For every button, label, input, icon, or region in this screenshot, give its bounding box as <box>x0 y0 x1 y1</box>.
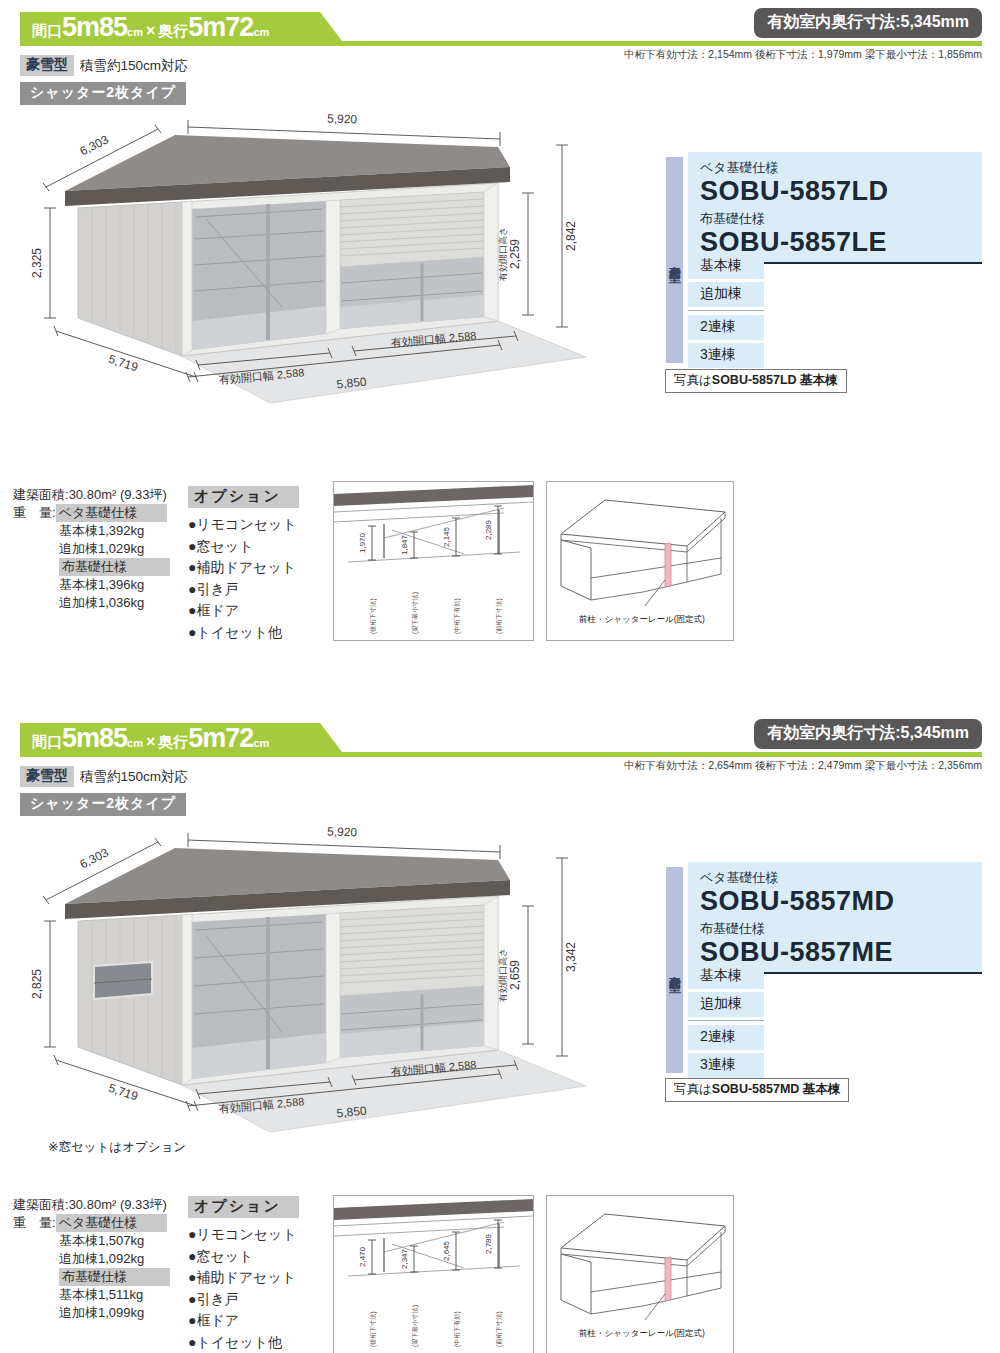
row-divider <box>688 1020 764 1021</box>
row-divider <box>688 310 764 311</box>
dim-roof-depth: 6,303 <box>78 845 111 871</box>
snow-capacity-note: 積雪約150cm対応 <box>80 57 188 75</box>
cs-dim-value: 2,470 <box>358 1246 367 1267</box>
beta-model-number: SOBU-5857MD <box>700 887 982 916</box>
size-width-value: 5m85 <box>62 12 127 42</box>
unit-row-additional: 追加棟 <box>688 282 764 307</box>
snow-capacity-note: 積雪約150cm対応 <box>80 768 188 786</box>
beta-model-number: SOBU-5857LD <box>700 177 982 206</box>
dim-side-depth: 5,719 <box>107 352 140 375</box>
effective-depth-badge: 有効室内奥行寸法:5,345mm <box>754 719 982 749</box>
size-width-value: 5m85 <box>62 723 127 753</box>
weight-label: 重 量: <box>13 505 56 520</box>
size-depth-value: 5m72 <box>188 723 253 753</box>
photo-caption-prefix: 写真は <box>674 1082 712 1096</box>
size-prefix: 間口 <box>32 727 62 752</box>
unit-row-3ren: 3連棟 <box>688 343 764 368</box>
building-area: 建築面積:30.80m² (9.33坪) <box>13 486 170 504</box>
cs-dim-label: (後桁下寸法) <box>369 1311 377 1347</box>
beta-add-weight: 追加棟1,029kg <box>13 540 170 558</box>
cross-section-svg: 2,470 2,347 2,645 2,789 (後桁下寸法) (梁下最小寸法)… <box>334 1196 533 1353</box>
option-item: ●框ドア <box>188 600 299 622</box>
beta-weight-header: ベタ基礎仕様 <box>56 1214 167 1232</box>
model-box: ベタ基礎仕様 SOBU-5857LD 布基礎仕様 SOBU-5857LE <box>688 152 982 264</box>
side-window <box>94 962 152 999</box>
nuno-base-weight: 基本棟1,396kg <box>13 576 170 594</box>
cs-dim-label: (梁下最小寸法) <box>411 1305 419 1347</box>
rail-diagram-svg: 前柱・シャッターレール(固定式) <box>547 482 733 640</box>
nuno-weight-header-line: 布基礎仕様 <box>13 558 170 576</box>
snow-type-badge: 豪雪型 <box>20 766 74 787</box>
size-unit: cm <box>253 737 269 749</box>
unit-row-additional: 追加棟 <box>688 992 764 1017</box>
size-depth-value: 5m72 <box>188 12 253 42</box>
garage-isometric-drawing: 5,920 6,303 2,825 5,719 有効開口高さ 2,659 3,3… <box>30 818 630 1154</box>
options-title: オプション <box>188 1196 299 1218</box>
dim-roof-width: 5,920 <box>327 824 358 839</box>
cs-dim-label: (前桁下寸法) <box>495 598 503 634</box>
cs-dim-label: (梁下最小寸法) <box>411 592 419 634</box>
dim-roof-depth: 6,303 <box>78 132 111 158</box>
rail-label: 前柱・シャッターレール(固定式) <box>579 1328 705 1338</box>
cross-section-svg: 1,970 1,847 2,145 2,289 (後桁下寸法) (梁下最小寸法)… <box>334 482 533 640</box>
depth-prefix: 奥行 <box>158 16 188 41</box>
rail-label: 前柱・シャッターレール(固定式) <box>579 614 705 624</box>
size-banner-text: 間口5m85cm×奥行5m72cm <box>32 723 269 753</box>
cs-dim-value: 1,970 <box>358 532 367 553</box>
nuno-model-number: SOBU-5857ME <box>700 938 982 967</box>
model-box: ベタ基礎仕様 SOBU-5857MD 布基礎仕様 SOBU-5857ME <box>688 862 982 974</box>
cross-section-diagram: 1,970 1,847 2,145 2,289 (後桁下寸法) (梁下最小寸法)… <box>333 481 534 641</box>
option-item: ●トイセット他 <box>188 1332 299 1353</box>
weight-line: 重 量:ベタ基礎仕様 <box>13 504 170 522</box>
cs-dim-label: (中桁下有効) <box>453 1311 461 1347</box>
building-area-value: 30.80m² (9.33坪) <box>69 487 167 502</box>
options-block: オプション ●リモコンセット ●窓セット ●補助ドアセット ●引き戸 ●框ドア … <box>188 1196 299 1353</box>
photo-caption-model: SOBU-5857LD 基本棟 <box>712 373 838 387</box>
rail-diagram-svg: 前柱・シャッターレール(固定式) <box>547 1196 733 1353</box>
option-item: ●引き戸 <box>188 579 299 601</box>
nuno-weight-header-line: 布基礎仕様 <box>13 1268 170 1286</box>
photo-caption: 写真はSOBU-5857MD 基本棟 <box>665 1078 849 1102</box>
nuno-weight-header: 布基礎仕様 <box>59 558 170 576</box>
under-beam-dimensions: 中桁下有効寸法：2,154mm 後桁下寸法：1,979mm 梁下最小寸法：1,8… <box>624 48 982 62</box>
photo-caption-prefix: 写真は <box>674 373 712 387</box>
beta-foundation-label: ベタ基礎仕様 <box>700 159 982 177</box>
beta-base-weight: 基本棟1,392kg <box>13 522 170 540</box>
beta-weight-header: ベタ基礎仕様 <box>56 504 167 522</box>
dim-wall-height: 2,825 <box>30 969 44 999</box>
option-item: ●リモコンセット <box>188 514 299 536</box>
option-item: ●リモコンセット <box>188 1224 299 1246</box>
dim-opening-height-label: 有効開口高さ <box>498 948 508 1003</box>
option-item: ●トイセット他 <box>188 622 299 644</box>
options-title: オプション <box>188 486 299 508</box>
times-sign: × <box>143 733 158 751</box>
weight-label: 重 量: <box>13 1215 56 1230</box>
cs-dim-label: (後桁下寸法) <box>369 598 377 634</box>
unit-row-2ren: 2連棟 <box>688 315 764 340</box>
option-item: ●引き戸 <box>188 1289 299 1311</box>
cs-dim-value: 2,145 <box>442 526 451 547</box>
model-type-tab: 豪雪型 <box>666 157 683 363</box>
unit-row-basic: 基本棟 <box>688 254 764 279</box>
rail-diagram: 前柱・シャッターレール(固定式) <box>546 1195 734 1353</box>
size-prefix: 間口 <box>32 16 62 41</box>
shutter-type-badge: シャッター2枚タイプ <box>20 82 186 105</box>
dim-overall-height: 2,842 <box>564 221 578 251</box>
model-type-tab: 豪雪型 <box>666 867 683 1073</box>
beta-foundation-label: ベタ基礎仕様 <box>700 869 982 887</box>
nuno-foundation-label: 布基礎仕様 <box>700 920 982 938</box>
cs-dim-value: 2,289 <box>484 519 493 540</box>
spec-block: 建築面積:30.80m² (9.33坪) 重 量:ベタ基礎仕様 基本棟1,507… <box>13 1196 170 1322</box>
option-item: ●補助ドアセット <box>188 1267 299 1289</box>
unit-row-2ren: 2連棟 <box>688 1025 764 1050</box>
garage-isometric-drawing: 5,920 6,303 2,325 5,719 有効開口高さ 2,259 2,8… <box>30 105 630 425</box>
effective-depth-badge: 有効室内奥行寸法:5,345mm <box>754 8 982 38</box>
snow-type-badge: 豪雪型 <box>20 55 74 76</box>
building-area-label: 建築面積: <box>13 487 69 502</box>
cs-dim-value: 1,847 <box>400 534 409 555</box>
option-item: ●補助ドアセット <box>188 557 299 579</box>
nuno-weight-header: 布基礎仕様 <box>59 1268 170 1286</box>
shutter-type-badge: シャッター2枚タイプ <box>20 793 186 816</box>
unit-row-basic: 基本棟 <box>688 964 764 989</box>
building-area: 建築面積:30.80m² (9.33坪) <box>13 1196 170 1214</box>
dim-opening-height-label: 有効開口高さ <box>498 227 508 282</box>
under-beam-dimensions: 中桁下有効寸法：2,654mm 後桁下寸法：2,479mm 梁下最小寸法：2,3… <box>624 759 982 773</box>
beta-base-weight: 基本棟1,507kg <box>13 1232 170 1250</box>
nuno-add-weight: 追加棟1,036kg <box>13 594 170 612</box>
rail-diagram: 前柱・シャッターレール(固定式) <box>546 481 734 641</box>
cs-dim-value: 2,645 <box>442 1240 451 1261</box>
size-unit: cm <box>127 26 143 38</box>
dim-roof-width: 5,920 <box>327 111 358 126</box>
nuno-foundation-label: 布基礎仕様 <box>700 210 982 228</box>
weight-line: 重 量:ベタ基礎仕様 <box>13 1214 170 1232</box>
beta-add-weight: 追加棟1,092kg <box>13 1250 170 1268</box>
cs-dim-value: 2,347 <box>400 1248 409 1269</box>
option-item: ●窓セット <box>188 1246 299 1268</box>
dim-opening-height-value: 2,659 <box>508 960 522 990</box>
catalog-page: 間口5m85cm×奥行5m72cm 有効室内奥行寸法:5,345mm 中桁下有効… <box>0 0 1000 1353</box>
photo-caption: 写真はSOBU-5857LD 基本棟 <box>665 369 847 393</box>
option-item: ●窓セット <box>188 536 299 558</box>
times-sign: × <box>143 22 158 40</box>
cs-dim-label: (前桁下寸法) <box>495 1311 503 1347</box>
size-unit: cm <box>253 26 269 38</box>
option-item: ●框ドア <box>188 1310 299 1332</box>
nuno-add-weight: 追加棟1,099kg <box>13 1304 170 1322</box>
options-block: オプション ●リモコンセット ●窓セット ●補助ドアセット ●引き戸 ●框ドア … <box>188 486 299 643</box>
dim-side-depth: 5,719 <box>107 1081 140 1104</box>
window-option-note: ※窓セットはオプション <box>48 1139 186 1156</box>
dim-overall-height: 3,342 <box>564 942 578 972</box>
cross-section-diagram: 2,470 2,347 2,645 2,789 (後桁下寸法) (梁下最小寸法)… <box>333 1195 534 1353</box>
building-area-value: 30.80m² (9.33坪) <box>69 1197 167 1212</box>
nuno-model-number: SOBU-5857LE <box>700 228 982 257</box>
cs-dim-label: (中桁下有効) <box>453 598 461 634</box>
dim-opening-height-value: 2,259 <box>508 239 522 269</box>
depth-prefix: 奥行 <box>158 727 188 752</box>
cs-dim-value: 2,789 <box>484 1233 493 1254</box>
photo-caption-model: SOBU-5857MD 基本棟 <box>712 1082 841 1096</box>
unit-row-3ren: 3連棟 <box>688 1053 764 1078</box>
size-banner-text: 間口5m85cm×奥行5m72cm <box>32 12 269 42</box>
nuno-base-weight: 基本棟1,511kg <box>13 1286 170 1304</box>
spec-block: 建築面積:30.80m² (9.33坪) 重 量:ベタ基礎仕様 基本棟1,392… <box>13 486 170 612</box>
size-unit: cm <box>127 737 143 749</box>
dim-wall-height: 2,325 <box>30 248 44 278</box>
building-area-label: 建築面積: <box>13 1197 69 1212</box>
